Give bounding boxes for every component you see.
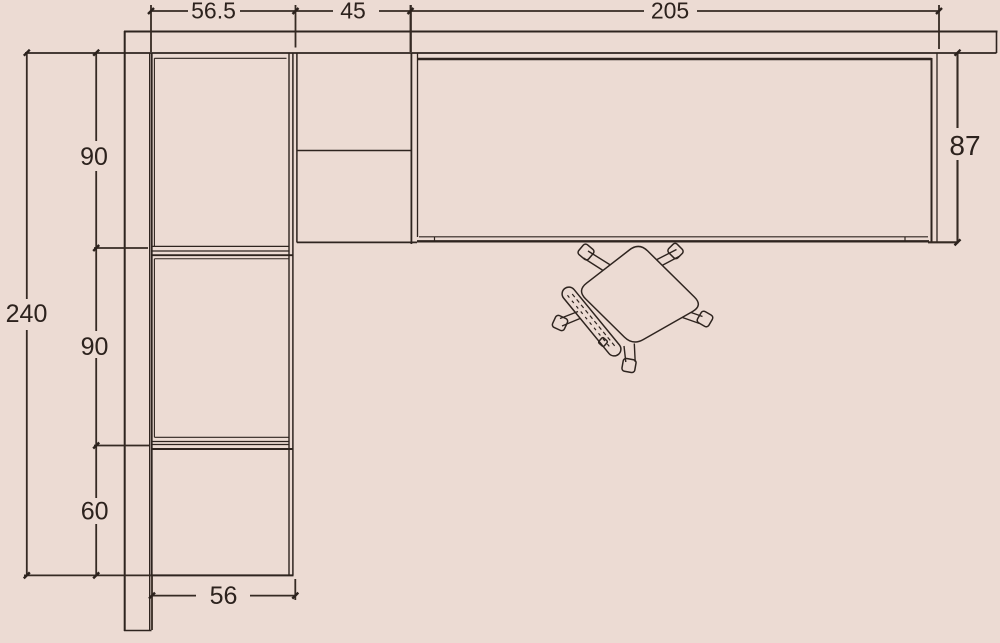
svg-text:240: 240 bbox=[6, 300, 48, 328]
svg-text:90: 90 bbox=[80, 143, 108, 171]
svg-text:87: 87 bbox=[949, 130, 980, 161]
svg-text:56.5: 56.5 bbox=[191, 0, 236, 24]
svg-text:90: 90 bbox=[81, 333, 109, 361]
svg-text:45: 45 bbox=[340, 0, 366, 24]
svg-text:205: 205 bbox=[651, 0, 689, 24]
svg-text:56: 56 bbox=[210, 582, 238, 610]
svg-text:60: 60 bbox=[81, 498, 109, 526]
